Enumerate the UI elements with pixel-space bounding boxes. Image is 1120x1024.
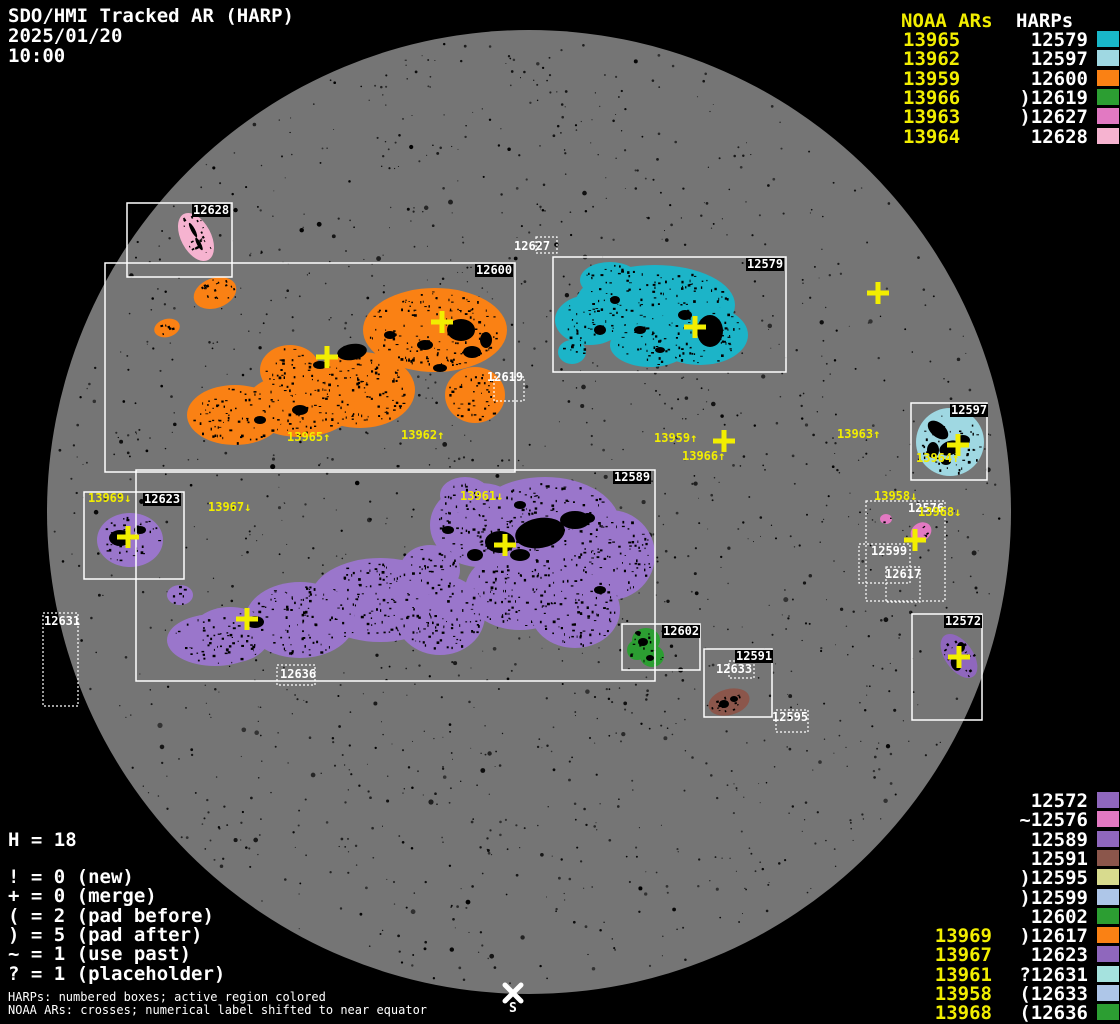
speckle	[435, 401, 438, 404]
granule	[645, 575, 647, 577]
granule	[676, 345, 677, 346]
granule	[495, 338, 498, 340]
granule	[386, 576, 388, 577]
speckle	[452, 425, 453, 426]
noaa-ar-label-13962: 13962↑	[401, 429, 444, 442]
speckle	[772, 178, 775, 181]
speckle	[233, 208, 237, 212]
speckle	[372, 857, 374, 859]
granule	[707, 302, 708, 303]
speckle	[152, 347, 154, 349]
granule	[538, 496, 540, 498]
harp-label-12602: 12602	[662, 625, 700, 638]
speckle	[674, 141, 677, 144]
granule	[380, 609, 381, 612]
granule	[578, 556, 581, 559]
speckle	[482, 651, 483, 652]
granule	[602, 502, 605, 503]
granule	[384, 632, 386, 634]
granule	[465, 376, 467, 378]
granule	[524, 579, 526, 582]
granule	[632, 571, 634, 572]
granule	[481, 377, 483, 379]
speckle	[866, 685, 867, 686]
speckle	[256, 540, 257, 541]
speckle	[450, 259, 451, 260]
speckle	[786, 746, 788, 748]
speckle	[425, 397, 426, 398]
sunspot	[634, 326, 646, 334]
granule	[600, 567, 603, 568]
speckle	[758, 677, 760, 679]
speckle	[394, 903, 395, 904]
speckle	[764, 740, 766, 742]
granule	[419, 631, 420, 633]
granule	[346, 417, 347, 419]
speckle	[442, 768, 444, 770]
speckle	[736, 414, 738, 416]
granule	[384, 565, 385, 567]
speckle	[383, 285, 384, 286]
granule	[375, 329, 376, 331]
granule	[480, 536, 482, 539]
granule	[627, 271, 629, 274]
granule	[455, 566, 457, 568]
color-chip-12597	[1097, 50, 1119, 66]
granule	[208, 644, 210, 646]
speckle	[429, 374, 431, 376]
speckle	[166, 591, 167, 592]
speckle	[206, 538, 207, 539]
granule	[630, 549, 631, 550]
granule	[486, 401, 489, 402]
speckle	[953, 581, 955, 583]
granule	[507, 569, 510, 571]
speckle	[443, 43, 445, 45]
speckle	[562, 380, 564, 382]
sunspot	[697, 315, 723, 347]
granule	[271, 391, 272, 394]
speckle	[642, 500, 646, 504]
speckle	[895, 793, 897, 795]
granule	[330, 619, 332, 621]
granule	[379, 574, 380, 576]
speckle	[298, 824, 300, 826]
speckle	[988, 434, 989, 435]
granule	[435, 626, 436, 628]
speckle	[470, 267, 472, 269]
speckle	[867, 513, 868, 514]
speckle	[947, 381, 949, 383]
granule	[652, 334, 654, 335]
granule	[377, 570, 378, 572]
granule	[208, 400, 210, 402]
speckle	[626, 856, 628, 858]
granule	[473, 319, 474, 321]
speckle	[502, 733, 503, 734]
harp-label-12597: 12597	[950, 404, 988, 417]
speckle	[305, 854, 307, 856]
color-chip-12636	[1097, 1004, 1119, 1020]
speckle	[181, 836, 183, 838]
granule	[583, 312, 585, 313]
granule	[305, 363, 306, 365]
speckle	[890, 753, 893, 756]
speckle	[94, 367, 96, 369]
granule	[545, 628, 547, 630]
granule	[435, 630, 438, 632]
granule	[448, 360, 449, 361]
granule	[241, 435, 244, 438]
granule	[514, 582, 516, 584]
speckle	[371, 827, 374, 830]
speckle	[260, 706, 262, 708]
granule	[625, 332, 628, 333]
granule	[512, 525, 513, 527]
speckle	[681, 377, 683, 379]
granule	[353, 572, 355, 574]
speckle	[965, 489, 966, 490]
speckle	[666, 600, 669, 603]
speckle	[799, 395, 801, 397]
speckle	[562, 660, 564, 662]
sunspot	[467, 549, 483, 561]
speckle	[790, 706, 792, 708]
speckle	[495, 474, 499, 478]
granule	[292, 383, 295, 385]
speckle	[209, 714, 210, 715]
speckle	[98, 594, 101, 597]
speckle	[866, 242, 868, 244]
region-fill-12576	[880, 514, 892, 524]
granule	[693, 360, 694, 362]
speckle	[305, 798, 307, 800]
speckle	[585, 689, 590, 694]
speckle	[897, 456, 899, 458]
granule	[473, 597, 476, 600]
granule	[462, 527, 463, 529]
speckle	[170, 395, 173, 398]
speckle	[433, 977, 435, 979]
granule	[622, 346, 623, 348]
granule	[309, 649, 311, 650]
granule	[507, 574, 508, 575]
granule	[262, 606, 265, 607]
speckle	[226, 824, 228, 826]
speckle	[224, 452, 227, 455]
granule	[213, 655, 216, 657]
granule	[959, 431, 961, 433]
granule	[525, 494, 527, 495]
speckle	[822, 396, 823, 397]
speckle	[748, 538, 749, 539]
granule	[205, 413, 208, 414]
granule	[584, 567, 586, 568]
speckle	[336, 555, 337, 556]
granule	[537, 576, 539, 578]
speckle	[890, 470, 891, 471]
speckle	[551, 751, 553, 753]
speckle	[478, 952, 479, 953]
speckle	[806, 463, 808, 465]
granule	[596, 499, 598, 501]
speckle	[489, 119, 491, 121]
granule	[327, 393, 328, 395]
speckle	[665, 674, 668, 677]
speckle	[746, 142, 747, 143]
speckle	[788, 694, 792, 698]
granule	[208, 619, 211, 622]
granule	[702, 281, 704, 282]
granule	[548, 574, 550, 576]
speckle	[514, 257, 518, 261]
speckle	[254, 730, 259, 735]
speckle	[737, 146, 739, 148]
granule	[540, 601, 542, 604]
speckle	[299, 228, 303, 232]
speckle	[812, 434, 815, 437]
speckle	[355, 481, 360, 486]
speckle	[794, 546, 795, 547]
speckle	[869, 685, 871, 687]
granule	[436, 624, 439, 626]
granule	[452, 364, 454, 366]
speckle	[594, 742, 595, 743]
speckle	[290, 117, 291, 118]
speckle	[951, 557, 952, 558]
granule	[423, 641, 425, 643]
speckle	[697, 96, 698, 97]
granule	[618, 344, 619, 346]
speckle	[203, 440, 205, 442]
granule	[733, 328, 735, 331]
speckle	[248, 331, 249, 332]
granule	[277, 419, 280, 421]
granule	[451, 647, 452, 649]
speckle	[888, 202, 891, 205]
granule	[465, 341, 467, 344]
speckle	[480, 753, 481, 754]
granule	[554, 594, 555, 596]
granule	[591, 495, 594, 496]
speckle	[823, 703, 825, 705]
granule	[302, 355, 304, 356]
granule	[424, 306, 427, 307]
speckle	[461, 888, 462, 889]
granule	[379, 584, 382, 586]
granule	[340, 360, 341, 362]
granule	[119, 552, 121, 554]
granule	[287, 386, 289, 388]
granule	[402, 301, 403, 303]
granule	[633, 586, 634, 588]
granule	[369, 570, 370, 573]
speckle	[810, 888, 811, 889]
speckle	[240, 314, 241, 315]
granule	[505, 578, 508, 580]
speckle	[367, 790, 369, 792]
granule	[110, 558, 111, 559]
speckle	[487, 849, 488, 850]
granule	[665, 350, 667, 352]
speckle	[533, 347, 535, 349]
granule	[444, 625, 445, 627]
granule	[292, 598, 293, 600]
granule	[649, 567, 651, 568]
speckle	[489, 420, 490, 421]
granule	[346, 568, 349, 570]
granule	[298, 356, 301, 357]
speckle	[829, 274, 831, 276]
granule	[467, 508, 469, 510]
granule	[215, 435, 217, 438]
speckle	[750, 154, 751, 155]
speckle	[536, 62, 539, 65]
granule	[123, 518, 125, 519]
speckle	[707, 599, 708, 600]
granule	[534, 496, 537, 497]
speckle	[618, 798, 620, 800]
granule	[273, 642, 275, 644]
granule	[237, 442, 239, 445]
granule	[302, 638, 304, 641]
granule	[597, 556, 600, 558]
granule	[371, 617, 372, 619]
speckle	[406, 78, 407, 79]
speckle	[768, 329, 769, 330]
granule	[495, 579, 496, 582]
speckle	[204, 848, 206, 850]
granule	[545, 626, 547, 627]
granule	[360, 570, 361, 572]
speckle	[449, 865, 451, 867]
bottom-legend-noaa-13967: 13967	[930, 945, 992, 965]
speckle	[266, 313, 268, 315]
speckle	[455, 927, 456, 928]
speckle	[412, 954, 414, 956]
granule	[221, 401, 223, 403]
granule	[653, 284, 656, 286]
speckle	[424, 206, 429, 211]
granule	[590, 329, 593, 330]
speckle	[479, 846, 481, 848]
granule	[331, 374, 334, 376]
granule	[404, 574, 406, 577]
speckle	[415, 71, 418, 74]
granule	[628, 581, 630, 584]
sunspot	[594, 325, 606, 335]
speckle	[658, 54, 661, 57]
granule	[406, 359, 407, 361]
granule	[466, 504, 468, 507]
granule	[633, 644, 636, 645]
speckle	[242, 811, 244, 813]
speckle	[772, 315, 774, 317]
speckle	[396, 492, 398, 494]
speckle	[165, 448, 166, 449]
granule	[637, 541, 638, 544]
speckle	[73, 444, 75, 446]
speckle	[649, 965, 651, 967]
granule	[466, 602, 469, 604]
granule	[694, 353, 695, 355]
granule	[358, 596, 359, 598]
granule	[531, 496, 533, 498]
granule	[493, 336, 494, 338]
speckle	[382, 155, 384, 157]
speckle	[405, 60, 406, 61]
speckle	[260, 209, 262, 211]
granule	[275, 601, 276, 602]
granule	[133, 555, 136, 556]
speckle	[608, 839, 611, 842]
granule	[585, 342, 586, 344]
speckle	[846, 626, 848, 628]
speckle	[687, 555, 689, 557]
speckle	[788, 813, 789, 814]
granule	[592, 303, 595, 305]
speckle	[340, 684, 342, 686]
speckle	[489, 794, 490, 795]
granule	[700, 356, 703, 357]
speckle	[273, 454, 275, 456]
granule	[315, 595, 316, 596]
speckle	[249, 530, 251, 532]
granule	[453, 636, 455, 637]
speckle	[847, 654, 848, 655]
granule	[321, 644, 322, 646]
sunspot	[485, 531, 515, 553]
granule	[472, 308, 473, 310]
granule	[482, 374, 483, 376]
speckle	[546, 744, 548, 746]
speckle	[147, 344, 148, 345]
speckle	[428, 799, 433, 804]
speckle	[518, 460, 520, 462]
speckle	[946, 535, 948, 537]
speckle	[205, 366, 206, 367]
granule	[449, 387, 451, 389]
speckle	[853, 840, 854, 841]
granule	[661, 361, 663, 363]
granule	[427, 582, 429, 585]
speckle	[137, 438, 139, 440]
granule	[942, 416, 943, 417]
granule	[229, 645, 232, 647]
granule	[597, 615, 598, 617]
granule	[357, 594, 360, 595]
speckle	[436, 803, 438, 805]
granule	[370, 360, 372, 362]
speckle	[54, 531, 56, 533]
speckle	[485, 754, 487, 756]
speckle	[917, 704, 918, 705]
bottom-legend-harp-12633: (12633	[1000, 984, 1088, 1004]
speckle	[241, 727, 246, 732]
granule	[423, 301, 424, 303]
speckle	[464, 136, 466, 138]
speckle	[286, 544, 287, 545]
speckle	[402, 792, 403, 793]
granule	[495, 602, 497, 604]
granule	[506, 497, 508, 500]
speckle	[388, 148, 390, 150]
granule	[656, 346, 659, 347]
granule	[461, 415, 464, 417]
granule	[301, 599, 303, 600]
speckle	[671, 407, 673, 409]
granule	[610, 612, 612, 614]
